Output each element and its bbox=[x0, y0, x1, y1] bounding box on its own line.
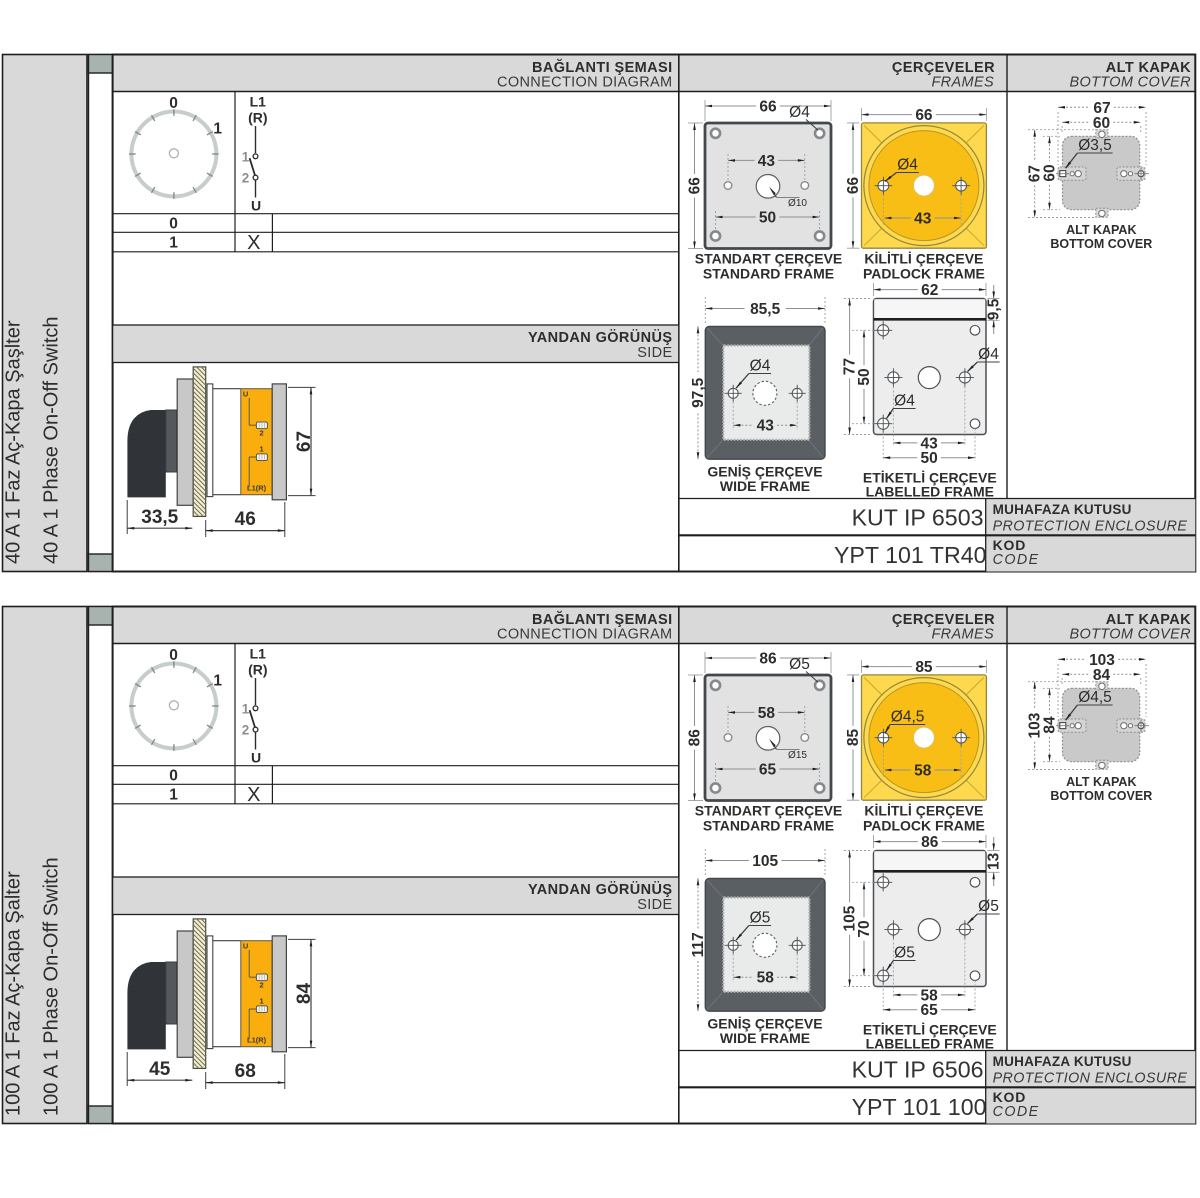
svg-text:85: 85 bbox=[915, 659, 933, 676]
svg-text:Ø5: Ø5 bbox=[750, 910, 771, 927]
svg-text:BOTTOM COVER: BOTTOM COVER bbox=[1050, 237, 1152, 251]
svg-text:ALT KAPAK: ALT KAPAK bbox=[1106, 60, 1191, 76]
svg-text:40 A 1 Phase On-Off Switch: 40 A 1 Phase On-Off Switch bbox=[41, 316, 63, 564]
svg-text:MUHAFAZA KUTUSU: MUHAFAZA KUTUSU bbox=[993, 502, 1132, 517]
svg-text:43: 43 bbox=[914, 211, 932, 228]
svg-text:L1(R): L1(R) bbox=[247, 1036, 267, 1045]
svg-text:BOTTOM COVER: BOTTOM COVER bbox=[1050, 789, 1152, 803]
svg-text:45: 45 bbox=[149, 1059, 171, 1080]
svg-text:MUHAFAZA KUTUSU: MUHAFAZA KUTUSU bbox=[993, 1054, 1132, 1069]
svg-text:KİLİTLİ ÇERÇEVE: KİLİTLİ ÇERÇEVE bbox=[864, 803, 983, 819]
svg-text:ÇERÇEVELER: ÇERÇEVELER bbox=[892, 60, 995, 76]
svg-text:66: 66 bbox=[845, 177, 862, 195]
svg-text:117: 117 bbox=[690, 932, 707, 957]
svg-text:2: 2 bbox=[242, 723, 250, 738]
svg-text:GENİŞ ÇERÇEVE: GENİŞ ÇERÇEVE bbox=[707, 464, 822, 480]
svg-text:Ø4: Ø4 bbox=[750, 358, 771, 375]
svg-text:PROTECTION ENCLOSURE: PROTECTION ENCLOSURE bbox=[993, 1070, 1188, 1086]
svg-text:Ø10: Ø10 bbox=[788, 198, 807, 209]
svg-text:0: 0 bbox=[169, 647, 178, 664]
svg-text:9,5: 9,5 bbox=[986, 298, 1003, 320]
svg-text:YANDAN GÖRÜNÜŞ: YANDAN GÖRÜNÜŞ bbox=[528, 329, 672, 346]
svg-text:60: 60 bbox=[1041, 164, 1058, 181]
svg-text:2: 2 bbox=[260, 429, 264, 438]
svg-text:1: 1 bbox=[169, 234, 178, 251]
svg-text:68: 68 bbox=[235, 1061, 256, 1082]
svg-text:66: 66 bbox=[759, 99, 777, 116]
svg-text:86: 86 bbox=[759, 651, 777, 668]
svg-text:66: 66 bbox=[686, 177, 703, 195]
svg-text:STANDART ÇERÇEVE: STANDART ÇERÇEVE bbox=[695, 803, 843, 819]
svg-text:67: 67 bbox=[294, 431, 315, 452]
svg-text:BOTTOM COVER: BOTTOM COVER bbox=[1069, 74, 1191, 90]
svg-text:1: 1 bbox=[213, 673, 222, 690]
svg-text:86: 86 bbox=[921, 834, 939, 851]
svg-text:65: 65 bbox=[920, 1002, 938, 1019]
svg-text:58: 58 bbox=[914, 763, 932, 780]
svg-text:43: 43 bbox=[757, 418, 775, 435]
svg-text:ALT KAPAK: ALT KAPAK bbox=[1066, 223, 1136, 237]
svg-text:BAĞLANTI ŞEMASI: BAĞLANTI ŞEMASI bbox=[532, 610, 673, 628]
svg-text:STANDARD FRAME: STANDARD FRAME bbox=[703, 265, 834, 281]
svg-text:100 A 1 Faz Aç-Kapa Şalter: 100 A 1 Faz Aç-Kapa Şalter bbox=[3, 871, 25, 1116]
svg-text:LABELLED FRAME: LABELLED FRAME bbox=[866, 1036, 994, 1052]
svg-text:KOD: KOD bbox=[993, 537, 1027, 553]
svg-text:WIDE FRAME: WIDE FRAME bbox=[720, 478, 810, 494]
svg-text:60: 60 bbox=[1093, 115, 1110, 132]
svg-text:85,5: 85,5 bbox=[750, 301, 781, 318]
svg-text:CONNECTION DIAGRAM: CONNECTION DIAGRAM bbox=[497, 626, 672, 642]
svg-text:X: X bbox=[247, 784, 260, 806]
svg-text:(R): (R) bbox=[248, 110, 267, 126]
svg-text:U: U bbox=[243, 390, 248, 399]
svg-text:WIDE FRAME: WIDE FRAME bbox=[720, 1030, 810, 1046]
svg-text:X: X bbox=[247, 232, 260, 254]
svg-text:Ø3,5: Ø3,5 bbox=[1078, 137, 1112, 154]
svg-text:86: 86 bbox=[686, 729, 703, 747]
svg-text:STANDART ÇERÇEVE: STANDART ÇERÇEVE bbox=[695, 251, 843, 267]
svg-text:YPT 101 100: YPT 101 100 bbox=[852, 1094, 987, 1120]
svg-text:L1(R): L1(R) bbox=[247, 484, 267, 493]
svg-text:1: 1 bbox=[213, 121, 222, 138]
svg-text:LABELLED FRAME: LABELLED FRAME bbox=[866, 484, 994, 500]
svg-text:Ø5: Ø5 bbox=[789, 656, 810, 673]
svg-text:33,5: 33,5 bbox=[141, 507, 178, 528]
svg-text:70: 70 bbox=[856, 920, 873, 937]
svg-text:ÇERÇEVELER: ÇERÇEVELER bbox=[892, 612, 995, 628]
svg-text:YANDAN GÖRÜNÜŞ: YANDAN GÖRÜNÜŞ bbox=[528, 881, 672, 898]
svg-text:50: 50 bbox=[759, 210, 776, 227]
svg-text:(R): (R) bbox=[248, 662, 267, 678]
svg-text:PROTECTION ENCLOSURE: PROTECTION ENCLOSURE bbox=[993, 518, 1188, 534]
svg-text:50: 50 bbox=[856, 368, 873, 385]
svg-text:U: U bbox=[251, 198, 261, 214]
svg-text:U: U bbox=[251, 750, 261, 766]
svg-text:1: 1 bbox=[260, 445, 264, 454]
svg-text:Ø4: Ø4 bbox=[897, 157, 918, 174]
svg-text:2: 2 bbox=[260, 981, 264, 990]
svg-text:0: 0 bbox=[169, 95, 178, 112]
svg-text:0: 0 bbox=[169, 216, 178, 233]
svg-text:2: 2 bbox=[242, 171, 250, 186]
svg-text:CODE: CODE bbox=[993, 552, 1040, 568]
svg-text:43: 43 bbox=[758, 153, 776, 170]
svg-text:KOD: KOD bbox=[993, 1089, 1027, 1105]
svg-text:YPT 101 TR40: YPT 101 TR40 bbox=[834, 542, 987, 568]
svg-text:1: 1 bbox=[169, 786, 178, 803]
svg-text:PADLOCK FRAME: PADLOCK FRAME bbox=[863, 817, 985, 833]
svg-text:Ø4,5: Ø4,5 bbox=[891, 709, 925, 726]
svg-text:CONNECTION DIAGRAM: CONNECTION DIAGRAM bbox=[497, 74, 672, 90]
svg-text:97,5: 97,5 bbox=[690, 377, 707, 408]
svg-text:PADLOCK FRAME: PADLOCK FRAME bbox=[863, 265, 985, 281]
svg-text:0: 0 bbox=[169, 768, 178, 785]
svg-text:KUT IP 6506: KUT IP 6506 bbox=[852, 1056, 984, 1082]
svg-text:66: 66 bbox=[915, 107, 933, 124]
svg-text:1: 1 bbox=[260, 997, 264, 1006]
svg-text:84: 84 bbox=[294, 983, 315, 1005]
svg-text:ALT KAPAK: ALT KAPAK bbox=[1066, 775, 1136, 789]
svg-text:65: 65 bbox=[759, 762, 777, 779]
svg-text:105: 105 bbox=[752, 853, 778, 870]
svg-text:Ø4,5: Ø4,5 bbox=[1078, 689, 1112, 706]
svg-text:SIDE: SIDE bbox=[637, 897, 672, 913]
svg-text:1: 1 bbox=[242, 150, 250, 165]
svg-text:BAĞLANTI ŞEMASI: BAĞLANTI ŞEMASI bbox=[532, 58, 673, 76]
svg-text:FRAMES: FRAMES bbox=[931, 74, 994, 90]
svg-text:1: 1 bbox=[242, 702, 250, 717]
svg-text:KUT IP 6503: KUT IP 6503 bbox=[852, 504, 984, 530]
svg-text:Ø5: Ø5 bbox=[894, 945, 915, 962]
svg-text:SIDE: SIDE bbox=[637, 345, 672, 361]
svg-text:13: 13 bbox=[986, 852, 1003, 870]
svg-text:STANDARD FRAME: STANDARD FRAME bbox=[703, 817, 834, 833]
svg-text:CODE: CODE bbox=[993, 1104, 1040, 1120]
svg-text:U: U bbox=[243, 942, 248, 951]
svg-text:84: 84 bbox=[1041, 716, 1058, 734]
svg-text:58: 58 bbox=[758, 705, 776, 722]
svg-text:84: 84 bbox=[1093, 667, 1111, 684]
svg-text:FRAMES: FRAMES bbox=[931, 626, 994, 642]
svg-text:GENİŞ ÇERÇEVE: GENİŞ ÇERÇEVE bbox=[707, 1016, 822, 1032]
svg-text:58: 58 bbox=[757, 970, 775, 987]
svg-text:ALT KAPAK: ALT KAPAK bbox=[1106, 612, 1191, 628]
svg-text:BOTTOM COVER: BOTTOM COVER bbox=[1069, 626, 1191, 642]
svg-text:L1: L1 bbox=[250, 94, 267, 110]
svg-text:62: 62 bbox=[921, 282, 938, 299]
svg-text:Ø4: Ø4 bbox=[978, 346, 999, 363]
svg-text:85: 85 bbox=[845, 729, 862, 747]
svg-text:L1: L1 bbox=[250, 646, 267, 662]
svg-text:46: 46 bbox=[235, 509, 256, 530]
svg-text:Ø4: Ø4 bbox=[894, 393, 915, 410]
svg-text:KİLİTLİ ÇERÇEVE: KİLİTLİ ÇERÇEVE bbox=[864, 251, 983, 267]
svg-text:Ø15: Ø15 bbox=[788, 750, 807, 761]
svg-text:40 A 1 Faz Aç-Kapa Şaşlter: 40 A 1 Faz Aç-Kapa Şaşlter bbox=[3, 320, 25, 564]
svg-text:Ø5: Ø5 bbox=[978, 898, 999, 915]
svg-text:50: 50 bbox=[920, 450, 937, 467]
svg-text:100 A 1 Phase On-Off Switch: 100 A 1 Phase On-Off Switch bbox=[41, 857, 63, 1116]
svg-text:Ø4: Ø4 bbox=[789, 104, 810, 121]
